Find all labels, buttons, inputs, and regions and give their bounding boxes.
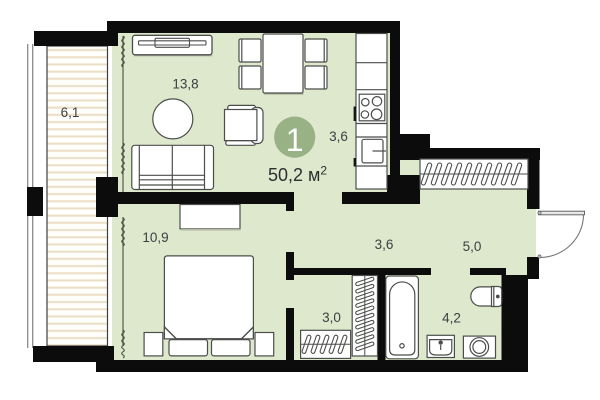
svg-text:13,8: 13,8 (172, 77, 198, 92)
svg-text:6,1: 6,1 (61, 105, 80, 120)
svg-text:4,2: 4,2 (442, 311, 461, 326)
svg-text:5,0: 5,0 (463, 239, 482, 254)
svg-text:3,0: 3,0 (322, 310, 341, 325)
svg-text:50,2 м2: 50,2 м2 (268, 164, 327, 186)
svg-text:3,6: 3,6 (329, 129, 348, 144)
svg-text:1: 1 (286, 122, 304, 158)
svg-text:3,6: 3,6 (375, 237, 394, 252)
svg-text:10,9: 10,9 (142, 230, 168, 245)
